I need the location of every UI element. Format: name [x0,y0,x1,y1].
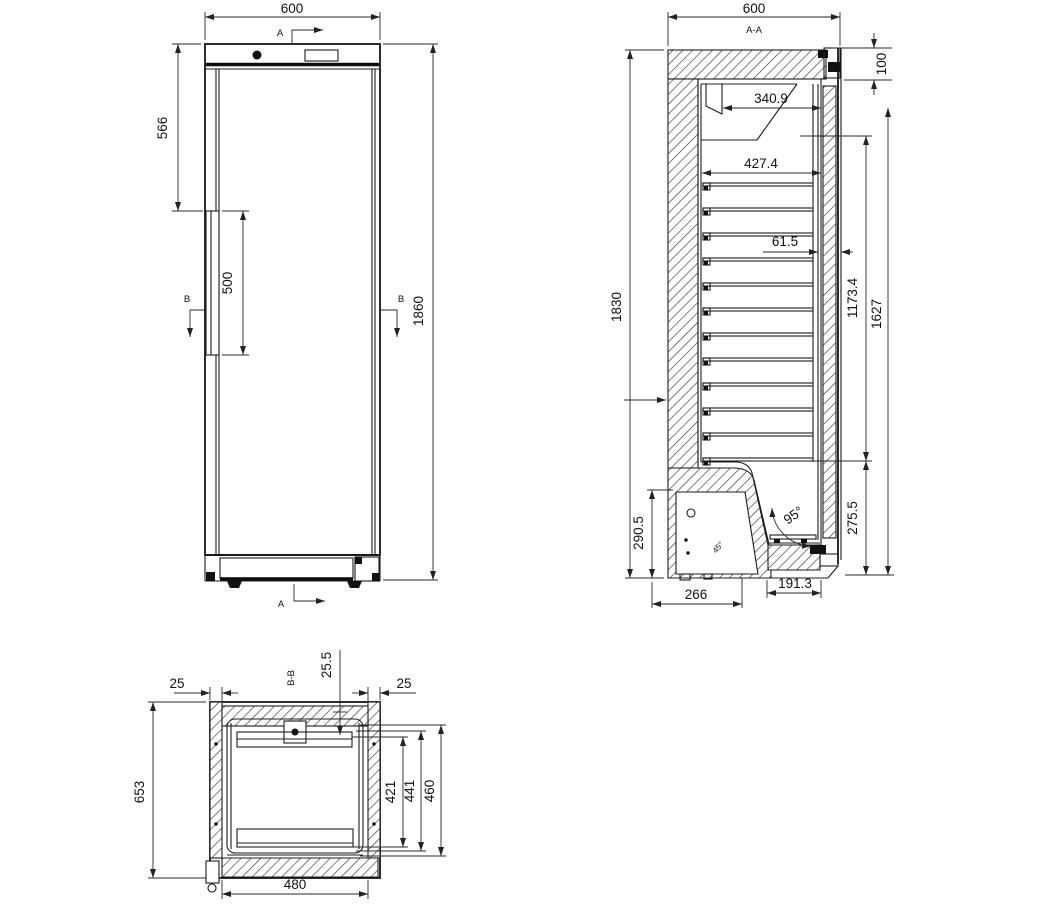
cut-label-b-left: B [184,294,190,305]
dim-left-wall: 25 [169,676,184,691]
dim-handle-offset: 566 [155,117,170,140]
dim-recess-depth: 191.3 [778,576,812,591]
dim-interior-width: 480 [284,877,307,892]
dim-door-angle: 95° [781,503,806,527]
dim-inner-depth-3: 460 [422,780,437,803]
dim-back-gap: 25.5 [319,652,334,678]
side-section-view: 600 A-A 1830 100 340.9 427.4 61.5 [609,1,894,608]
dim-inner-depth-2: 441 [402,780,417,803]
dim-door-thickness: 61.5 [772,234,798,249]
dim-top-clearance: 100 [874,53,889,76]
dim-evap-depth: 340.9 [754,91,788,106]
bottom-cabinet [206,702,380,892]
dim-right-wall: 25 [396,676,411,691]
dim-inner-depth-1: 421 [383,781,398,804]
dim-bottom-depth: 653 [132,781,147,804]
cut-label-a-bottom: A [278,599,285,610]
dim-handle-length: 500 [220,272,235,295]
bottom-section-view: B-B 25 25 25.5 653 480 [132,650,446,899]
technical-drawing-page: 600 A 566 500 B B 1860 A [0,0,1050,900]
dim-interior-height: 1173.4 [845,277,860,318]
door-lock [253,51,262,60]
dim-side-width: 600 [743,1,766,16]
door-band [222,858,378,877]
shelves [703,183,813,465]
handle-section [206,861,219,892]
dim-door-height: 1627 [869,299,884,329]
dim-compressor-height: 290.5 [631,516,646,550]
dim-base-depth: 266 [685,587,708,602]
dim-recess-height: 275.5 [845,501,860,535]
section-label-bb: B-B [286,670,297,686]
dim-front-height: 1860 [411,296,426,326]
cut-label-a-top: A [277,28,284,39]
foot-right [347,581,362,588]
foot-left [227,581,242,588]
cut-label-b-right: B [398,294,404,305]
base-plinth [205,555,380,588]
door-handle [206,211,219,355]
top-hinge [828,62,840,72]
dim-front-width: 600 [281,1,304,16]
front-view: 600 A 566 500 B B 1860 A [155,1,438,610]
section-label-aa: A-A [746,25,763,36]
refrigerator-dimension-drawing: 600 A 566 500 B B 1860 A [0,0,1050,900]
dim-side-height: 1830 [609,292,624,322]
front-dimensions: 600 A 566 500 B B 1860 A [155,1,438,610]
top-hinge [818,50,828,58]
side-cabinet [668,48,841,580]
front-cabinet [205,44,380,588]
compressor-compartment [676,492,758,580]
door-shelf [237,829,353,847]
dim-shelf-depth: 427.4 [744,156,778,171]
bottom-hinge [810,545,826,554]
badge [305,50,338,61]
